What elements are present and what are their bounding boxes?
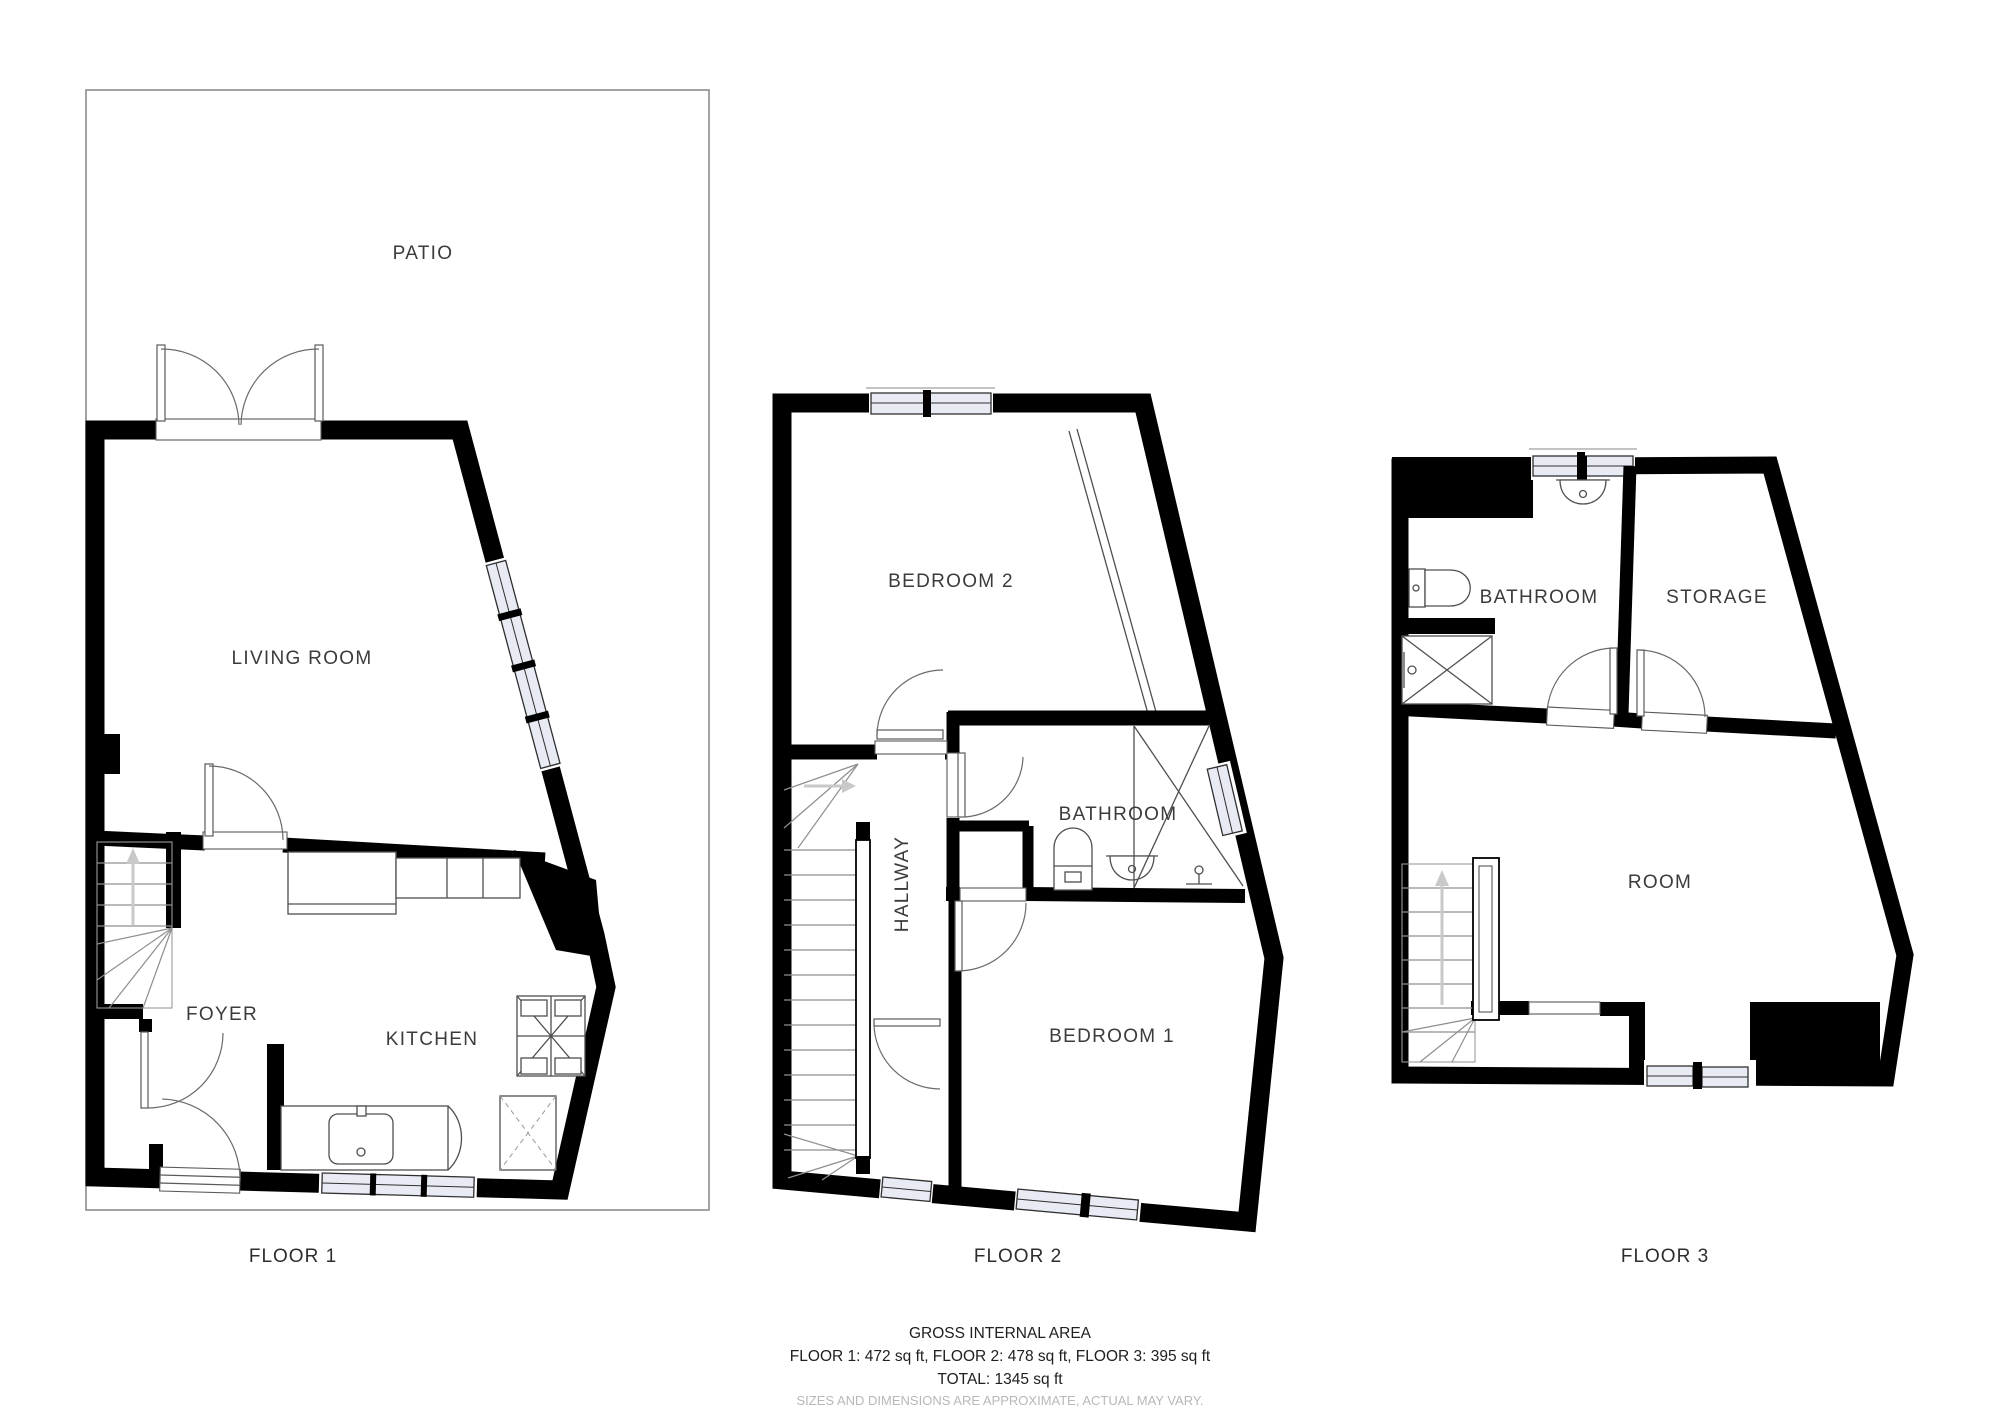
room-label-hallway: HALLWAY [892,836,913,932]
room-windows [1644,1060,1756,1090]
room-label-bathroom3: BATHROOM [1480,587,1599,608]
toilet [1054,828,1092,890]
footer-area-summary: GROSS INTERNAL AREA FLOOR 1: 472 sq ft, … [0,1322,2000,1411]
room-label-bathroom2: BATHROOM [1059,804,1178,825]
bathroom3-door [1547,707,1615,728]
floor-3-label: FLOOR 3 [1621,1246,1709,1267]
room-label-kitchen: KITCHEN [386,1029,479,1050]
total-area: TOTAL: 1345 sq ft [0,1368,2000,1391]
toilet [1409,569,1470,607]
room-label-patio: PATIO [393,243,454,264]
floor-1-plan: PATIO LIVING ROOM FOYER KITCHEN FLOOR 1 [55,55,765,1270]
floor3-wall-block [1392,457,1533,518]
room-label-living-room: LIVING ROOM [232,648,373,669]
disclaimer: SIZES AND DIMENSIONS ARE APPROXIMATE, AC… [0,1391,2000,1411]
stair-window [879,1174,934,1205]
floorplan-canvas: PATIO LIVING ROOM FOYER KITCHEN FLOOR 1 [0,0,2000,1411]
room-label-foyer: FOYER [186,1004,258,1025]
kitchen-windows [319,1170,478,1200]
bedroom2-windows [866,388,995,417]
room-label-storage: STORAGE [1666,587,1768,608]
gross-area-title: GROSS INTERNAL AREA [0,1322,2000,1345]
floor3-void-block [1750,1002,1880,1078]
kitchen-cabinet [500,1096,556,1170]
room-label-bedroom2: BEDROOM 2 [888,571,1014,592]
shower [1402,636,1492,704]
floor1-wall-pillar [86,734,120,774]
floor-2-label: FLOOR 2 [974,1246,1062,1267]
room-label-room: ROOM [1628,872,1692,893]
floor-1-label: FLOOR 1 [249,1246,337,1267]
room-label-bedroom1: BEDROOM 1 [1049,1026,1175,1047]
kitchen-sink-counter [281,1106,462,1170]
floor-2-plan: BEDROOM 2 HALLWAY BATHROOM BEDROOM 1 FLO… [750,375,1315,1270]
stove [517,996,585,1076]
floor-3-plan: BATHROOM STORAGE ROOM FLOOR 3 [1380,440,1955,1270]
floor-areas: FLOOR 1: 472 sq ft, FLOOR 2: 478 sq ft, … [0,1345,2000,1368]
storage-door-threshold [1642,712,1708,733]
